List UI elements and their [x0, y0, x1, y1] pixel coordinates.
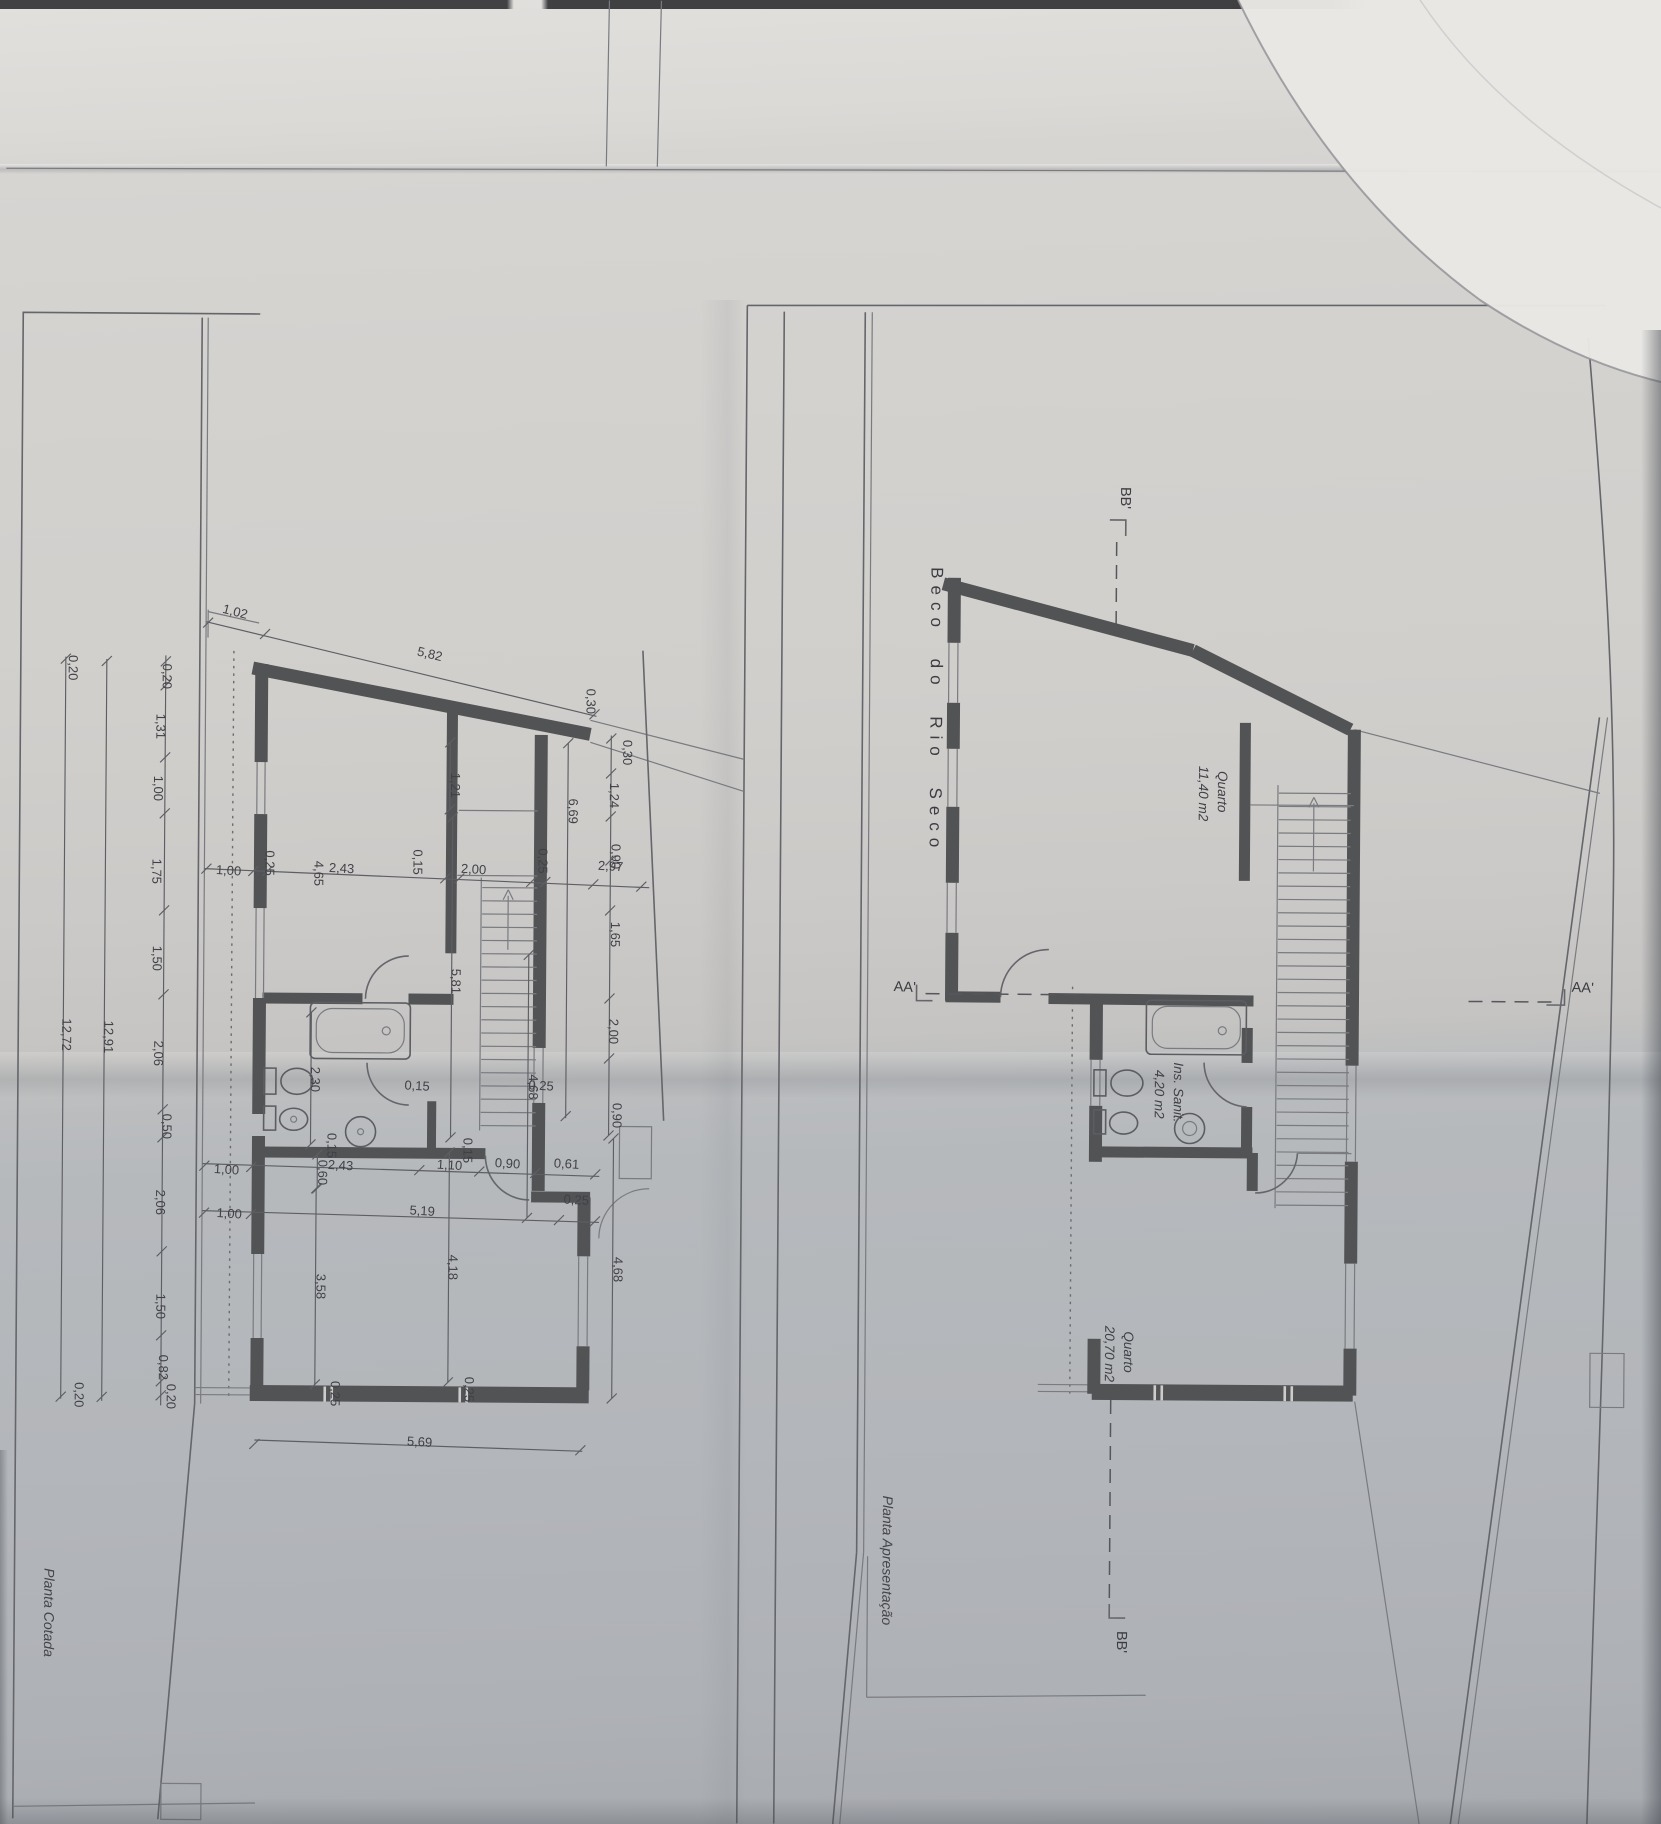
dimension-label: 2,43 — [327, 1157, 353, 1173]
stair-tread — [1278, 899, 1350, 900]
exterior-wall — [260, 814, 261, 908]
room-area-label: 4,20 m2 — [1152, 1070, 1167, 1119]
stair-tread — [1279, 846, 1351, 847]
dimension-label: 12,91 — [101, 1021, 116, 1054]
paper-curl — [1238, 0, 1661, 382]
interior-partition — [262, 998, 362, 999]
text-labels: 0,201,311,001,751,502,060,502,061,500,82… — [41, 479, 1598, 1667]
stair-tread — [1276, 1205, 1348, 1206]
dimension-label: 4,68 — [611, 1257, 626, 1282]
exterior-wall — [261, 664, 262, 762]
room-area-label: 20,70 m2 — [1102, 1325, 1117, 1383]
exterior-wall — [1092, 1392, 1353, 1394]
left-plan — [55, 609, 651, 1456]
exterior-wall — [539, 735, 541, 1048]
room-name-label: Ins. Sanit. — [1171, 1062, 1186, 1122]
bathroom-fixtures — [1093, 1000, 1246, 1144]
room-name-label: Quarto — [1215, 771, 1230, 813]
stair-tread — [1277, 1086, 1349, 1087]
dimension-label: 0,30 — [620, 740, 635, 765]
section-mark-glyph — [916, 985, 932, 1001]
stair-tread — [1277, 1006, 1349, 1007]
dimension-label: 2,00 — [461, 861, 487, 877]
dimension-label: 12,72 — [59, 1018, 74, 1051]
dimension-label: 2,06 — [151, 1041, 166, 1066]
dimension-label: 4,65 — [311, 861, 326, 886]
stair-tread — [1278, 860, 1350, 861]
exterior-wall — [1352, 730, 1354, 1066]
photo-right-edge-shadow — [1641, 330, 1661, 1824]
section-line-bb — [1109, 1400, 1110, 1614]
upper-strip-line — [657, 1, 661, 167]
stair-tread — [1278, 966, 1350, 967]
interior-partition — [1244, 723, 1245, 881]
staircase — [1247, 785, 1354, 1209]
stair-tread — [1279, 833, 1351, 834]
exterior-wall — [258, 1136, 259, 1254]
interior-partition — [261, 1152, 485, 1154]
section-label: AA' — [893, 979, 916, 996]
stair-tread — [1277, 1019, 1349, 1020]
stair-tread — [1278, 886, 1350, 887]
dimension-label: 0,61 — [553, 1155, 579, 1171]
dimension-label: 5,69 — [407, 1433, 433, 1449]
room-name-label: Quarto — [1121, 1331, 1136, 1373]
dimension-label: 1,00 — [216, 862, 242, 878]
room-area-label: 11,40 m2 — [1196, 766, 1211, 822]
dimension-label: 0,90 — [610, 1103, 625, 1128]
door-arc — [1001, 949, 1049, 997]
section-label: BB' — [1113, 1631, 1129, 1653]
door-arc — [1255, 1153, 1297, 1193]
exterior-wall — [252, 668, 590, 734]
section-label: AA' — [1571, 980, 1594, 997]
section-line-bb — [1116, 542, 1117, 624]
stair-tread — [1277, 1046, 1349, 1047]
section-lines — [912, 519, 1568, 1621]
dimension-label: 1,00 — [213, 1161, 239, 1177]
dimension-label: 1,31 — [153, 714, 168, 739]
bathroom-fixtures — [263, 1002, 410, 1147]
dimension-label: 1,02 — [221, 601, 249, 622]
stair-tread — [1277, 1059, 1349, 1060]
stair-tread — [1276, 1152, 1348, 1153]
exterior-wall — [943, 584, 1193, 651]
stair-tread — [1278, 926, 1350, 927]
dimension-label: 0,20 — [66, 655, 81, 680]
plan-caption-right: Planta Apresentação — [879, 1496, 896, 1626]
stair-tread — [1276, 1192, 1348, 1193]
stair-tread — [1279, 793, 1351, 794]
door-arc — [1204, 1063, 1247, 1107]
dimension-label: 2,43 — [329, 860, 355, 876]
gate-swing-arc — [599, 1188, 649, 1238]
stair-tread — [1276, 1165, 1348, 1166]
exterior-wall — [1192, 651, 1351, 730]
dimension-ticks — [55, 617, 648, 1456]
dimension-label: 5,19 — [409, 1202, 435, 1218]
setback-dotted-line — [1070, 987, 1073, 1394]
dimension-label: 4,18 — [446, 1255, 461, 1280]
dimension-label: 1,10 — [436, 1157, 462, 1173]
dimension-label: 1,24 — [607, 783, 622, 808]
dimension-label: 0,20 — [72, 1382, 87, 1407]
exterior-wall — [250, 1393, 589, 1395]
bidet-fixture — [1110, 1112, 1138, 1134]
dimension-label: 0,90 — [608, 844, 623, 869]
dimension-label: 0,50 — [160, 1114, 175, 1139]
door-arc — [367, 1063, 409, 1105]
dimension-label: 0,15 — [460, 1138, 475, 1163]
stair-tread — [1277, 1032, 1349, 1033]
stair-tread — [1277, 1112, 1349, 1113]
staircase — [456, 810, 538, 1131]
curved-site-boundary — [1578, 337, 1618, 1824]
stair-tread — [1279, 820, 1351, 821]
dimension-label: 1,50 — [153, 1294, 168, 1319]
setback-dotted-line — [229, 651, 234, 1396]
dimension-label: 2,00 — [606, 1019, 621, 1044]
exterior-wall — [952, 807, 953, 883]
right-title-block-line — [867, 1556, 868, 1697]
street-edge-line — [857, 312, 866, 1552]
floor-plan-drawing: 0,201,311,001,751,502,060,502,061,500,82… — [0, 0, 1661, 1824]
dimension-label: 1,00 — [151, 776, 166, 801]
neighbor-structure — [1590, 1353, 1624, 1407]
plan-caption-left: Planta Cotada — [41, 1568, 58, 1657]
stair-tread — [1278, 939, 1350, 940]
stair-tread — [1278, 979, 1350, 980]
right-sheet-frame-vertical — [737, 305, 748, 1823]
dimension-label: 2,06 — [153, 1190, 168, 1215]
dimension-label: 0,30 — [583, 689, 598, 714]
photographed-floor-plan-sheet: 0,201,311,001,751,502,060,502,061,500,82… — [0, 0, 1661, 1824]
dimension-label: 0,15 — [324, 1133, 339, 1158]
dimension-label: 1,75 — [149, 859, 164, 884]
dimension-label: 0,20 — [160, 664, 175, 689]
sheet-frames — [0, 0, 1661, 1824]
stair-tread — [1277, 1099, 1349, 1100]
dimension-label: 0,20 — [164, 1384, 179, 1409]
bidet-fixture — [280, 1108, 308, 1130]
stair-tread — [1277, 1139, 1349, 1140]
stair-tread — [1278, 913, 1350, 914]
exterior-wall — [1351, 1162, 1352, 1264]
dimension-label: 1,00 — [216, 1205, 242, 1221]
dimension-lines — [55, 617, 651, 1456]
stair-tread — [1277, 1072, 1349, 1073]
street-name-label: Beco do Rio Seco — [926, 567, 947, 854]
door-arc — [365, 956, 408, 999]
exterior-wall — [259, 998, 260, 1114]
section-mark-glyph — [1109, 1604, 1125, 1618]
dimension-label: 2,30 — [308, 1067, 323, 1092]
right-title-block-line — [867, 1693, 1146, 1699]
photo-left-edge-shadow — [0, 1450, 8, 1824]
interior-partition — [1099, 1152, 1252, 1153]
right-plan — [912, 519, 1568, 1621]
section-mark-glyph — [1110, 520, 1126, 536]
stair-tread — [1278, 953, 1350, 954]
dimension-label: 0,25 — [328, 1381, 343, 1406]
dimension-label: 6,69 — [566, 798, 581, 823]
dimension-label: 0,25 — [563, 1192, 589, 1208]
dimension-label: 5,81 — [449, 969, 464, 994]
dimension-label: 0,90 — [494, 1155, 520, 1171]
photo-bottom-edge-shadow — [0, 1798, 1661, 1824]
dimension-label: 1,65 — [608, 922, 623, 947]
stair-tread — [1277, 1125, 1349, 1126]
dimension-label: 1,21 — [448, 773, 463, 798]
section-line-aa — [1468, 1001, 1556, 1002]
upper-strip-line — [606, 0, 609, 166]
exterior-wall — [538, 1103, 539, 1191]
stair-tread — [1279, 806, 1351, 807]
stair-tread — [1278, 992, 1350, 993]
dimension-label: 0,25 — [535, 848, 550, 873]
dimension-label: 1,50 — [150, 946, 165, 971]
dimension-label: 0,25 — [528, 1077, 554, 1093]
dimension-label: 3,58 — [313, 1274, 328, 1299]
dimension-label: 0,25 — [262, 850, 277, 875]
toilet-fixture — [264, 1068, 276, 1094]
bidet-fixture — [264, 1106, 276, 1130]
dimension-label: 0,15 — [410, 849, 425, 874]
right-sheet-frame-top — [747, 299, 1605, 311]
stair-tread — [1278, 873, 1350, 874]
dimension-label: 0,82 — [156, 1355, 171, 1380]
dimension-label: 0,15 — [404, 1077, 430, 1093]
dimension-label: 5,82 — [416, 644, 444, 664]
toilet-fixture — [1111, 1070, 1143, 1096]
section-label: BB' — [1117, 487, 1133, 509]
neighbor-structure — [619, 1127, 651, 1179]
washbasin-fixture — [345, 1117, 375, 1147]
dimension-label: 0,25 — [462, 1377, 477, 1402]
